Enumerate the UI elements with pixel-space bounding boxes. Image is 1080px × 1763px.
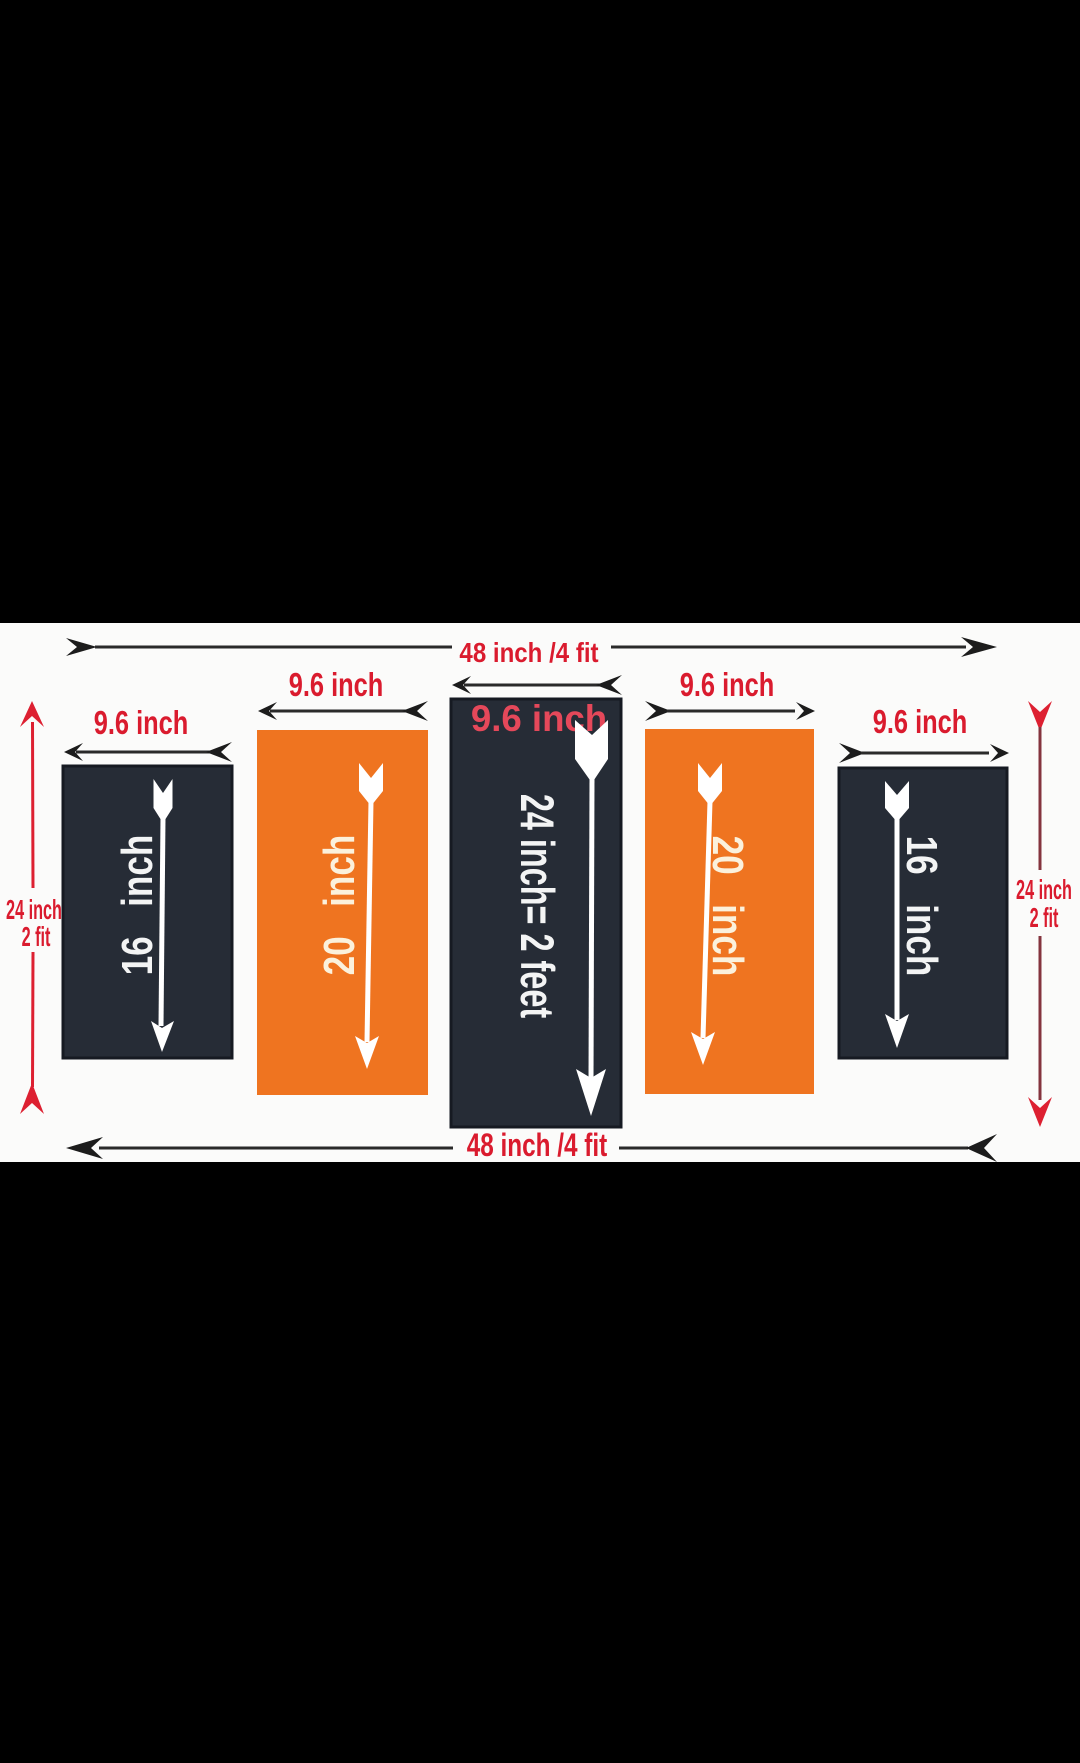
svg-text:48 inch /4 fit: 48 inch /4 fit (467, 1128, 608, 1164)
svg-text:20 inch: 20 inch (315, 835, 364, 976)
svg-text:2 fit: 2 fit (22, 920, 51, 952)
svg-text:48 inch /4 fit: 48 inch /4 fit (459, 636, 598, 668)
svg-text:2 fit: 2 fit (1030, 901, 1059, 933)
svg-text:9.6 inch: 9.6 inch (680, 667, 775, 704)
svg-text:24 inch= 2 feet: 24 inch= 2 feet (511, 794, 565, 1018)
svg-text:20 inch: 20 inch (703, 836, 752, 977)
svg-text:9.6 inch: 9.6 inch (873, 704, 968, 741)
svg-text:9.6 inch: 9.6 inch (289, 667, 384, 704)
svg-text:16 inch: 16 inch (113, 835, 162, 976)
svg-text:16 inch: 16 inch (897, 836, 946, 977)
svg-text:9.6 inch: 9.6 inch (94, 705, 189, 742)
